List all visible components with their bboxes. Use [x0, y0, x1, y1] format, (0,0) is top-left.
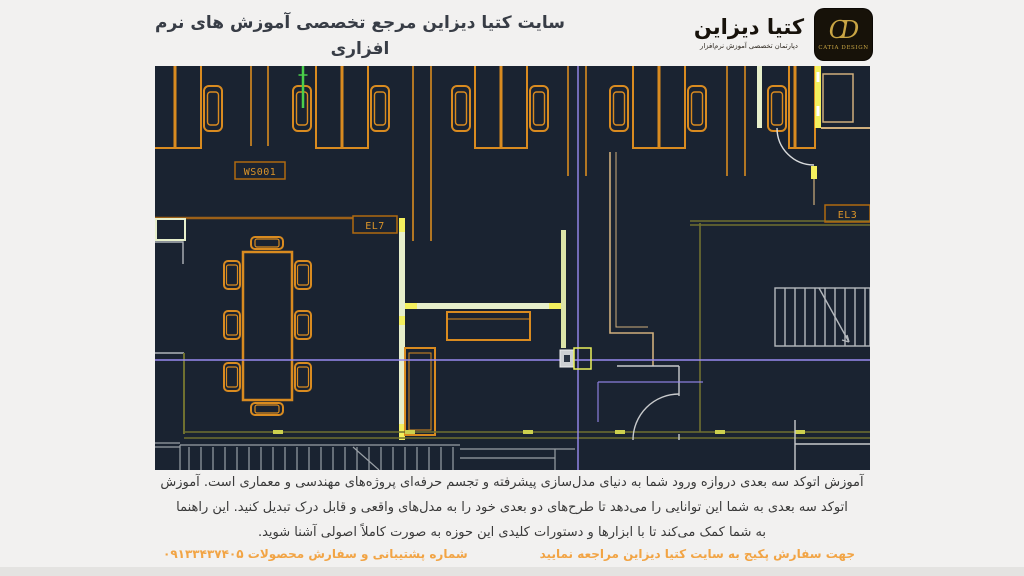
support-phone-note: شماره پشتیبانی و سفارش محصولات ۰۹۱۳۳۴۳۷۴…	[163, 547, 468, 561]
el3-label: EL3	[838, 210, 858, 221]
order-note: جهت سفارش پکیج به سایت کتیا دیزاین مراجع…	[540, 547, 855, 561]
conference-room	[155, 218, 353, 434]
stair-hatch-bottom	[155, 443, 575, 470]
brand-department: دپارتمان تخصصی آموزش نرم‌افزار	[686, 42, 812, 50]
workstation-clusters	[155, 66, 815, 241]
promo-banner: سایت کتیا دیزاین مرجع تخصصی آموزش های نر…	[0, 0, 1024, 576]
cabinet-furniture	[405, 312, 530, 435]
brand-wordmark: کتیا دیزاین دپارتمان تخصصی آموزش نرم‌افز…	[686, 14, 812, 50]
brand-name-fa: کتیا دیزاین	[686, 14, 812, 40]
autocad-viewport: WS001 EL7 EL3	[155, 66, 870, 470]
cad-labels	[235, 162, 870, 233]
selection-highlight-box	[574, 348, 591, 369]
el7-label: EL7	[365, 221, 385, 232]
staircase-right	[775, 288, 870, 346]
description-line-2: اتوکد سه بعدی به شما این توانایی را می‌د…	[140, 495, 884, 520]
site-title: سایت کتیا دیزاین مرجع تخصصی آموزش های نر…	[130, 10, 590, 62]
interior-walls-tan	[610, 152, 653, 366]
floor-plan-svg: WS001 EL7 EL3	[155, 66, 870, 470]
cd-monogram-icon: CD	[829, 18, 853, 42]
brand-name-en: CATIA DESIGN	[818, 45, 868, 51]
highlighted-walls	[399, 218, 566, 440]
description-line-1: آموزش اتوکد سه بعدی دروازه ورود شما به د…	[140, 470, 884, 495]
ws001-label: WS001	[244, 167, 277, 178]
description-line-3: به شما کمک می‌کند تا با ابزارها و دستورا…	[140, 520, 884, 545]
catia-design-logo: CD CATIA DESIGN	[815, 9, 872, 60]
bottom-strip	[0, 567, 1024, 576]
olive-walls	[184, 221, 870, 438]
crosshair-cursor	[155, 66, 870, 470]
course-description: آموزش اتوکد سه بعدی دروازه ورود شما به د…	[140, 470, 884, 545]
conference-table	[224, 237, 311, 415]
